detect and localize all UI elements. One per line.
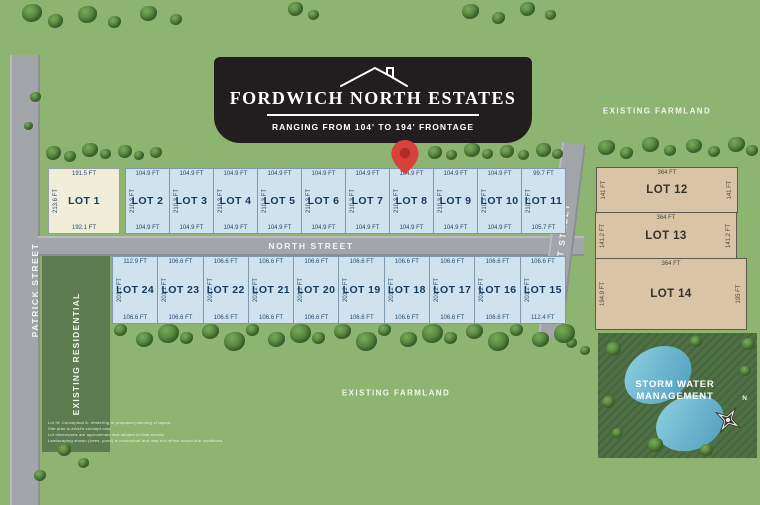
lot-cell: 104.9 FTLOT 4104.9 FT210.3 FT xyxy=(213,168,258,234)
lot-cell: 112.9 FTLOT 24106.6 FT201.1 FT xyxy=(112,256,158,324)
lot-dim-bottom: 104.9 FT xyxy=(390,225,433,231)
lot-dim-side: 201.2 FT xyxy=(525,278,531,302)
lot-dim-top: 106.6 FT xyxy=(158,259,202,265)
tree-icon xyxy=(378,324,391,336)
tree-icon xyxy=(708,146,720,157)
lot-dim-side: 201.2 FT xyxy=(434,278,440,302)
lot-dim-side: 210.3 FT xyxy=(130,189,136,213)
lot-number-label: LOT 1 xyxy=(68,195,100,207)
lot-dim-top: 106.6 FT xyxy=(339,259,383,265)
tree-icon xyxy=(290,324,311,343)
lot-dim-bottom: 104.9 FT xyxy=(302,225,345,231)
tree-icon xyxy=(288,2,303,16)
tree-icon xyxy=(114,324,127,336)
bottom-lot-row: 112.9 FTLOT 24106.6 FT201.1 FT106.6 FTLO… xyxy=(112,256,566,324)
patrick-street-road: PATRICK STREET xyxy=(10,55,40,505)
lot-number-label: LOT 8 xyxy=(396,195,428,207)
tree-icon xyxy=(134,151,144,160)
lot-dim-top: 364 FT xyxy=(596,215,736,221)
lot-dim-bottom: 106.6 FT xyxy=(204,315,248,321)
lot-cell: 104.9 FTLOT 5104.9 FT210.3 FT xyxy=(257,168,302,234)
tree-icon xyxy=(22,4,42,22)
tree-icon xyxy=(492,12,505,24)
lot-number-label: LOT 13 xyxy=(645,230,686,242)
lot-dim-left: 141 FT xyxy=(601,180,607,199)
lot-dim-bottom: 106.6 FT xyxy=(249,315,293,321)
lot-dim-top: 106.6 FT xyxy=(204,259,248,265)
lot-number-label: LOT 14 xyxy=(650,288,691,300)
tree-icon xyxy=(140,6,157,21)
lot-cell: 364 FTLOT 14194.9 FT195 FT xyxy=(595,258,747,330)
lot-dim-side: 210.3 FT xyxy=(438,189,444,213)
right-lot-column: 364 FTLOT 12141 FT141 FT364 FTLOT 13141.… xyxy=(596,168,756,330)
tree-icon xyxy=(536,143,551,157)
tree-icon xyxy=(150,147,162,158)
lot-dim-top: 106.6 FT xyxy=(430,259,474,265)
lot-dim-top: 104.9 FT xyxy=(346,171,389,177)
lot-cell: 104.9 FTLOT 10104.9 FT210.3 FT xyxy=(477,168,522,234)
lot-dim-top: 106.6 FT xyxy=(475,259,519,265)
tree-icon xyxy=(444,332,457,344)
lot-dim-top: 112.9 FT xyxy=(113,259,157,265)
lot-dim-bottom: 106.6 FT xyxy=(430,315,474,321)
existing-farmland-top-label: EXISTING FARMLAND xyxy=(603,107,711,116)
lot-dim-top: 104.9 FT xyxy=(170,171,213,177)
lot-number-label: LOT 12 xyxy=(646,184,687,196)
north-street-label: NORTH STREET xyxy=(268,241,353,251)
tree-icon xyxy=(82,143,98,157)
lot-dim-bottom: 105.7 FT xyxy=(522,225,565,231)
lot-dim-bottom: 106.6 FT xyxy=(385,315,429,321)
roof-icon xyxy=(335,65,411,87)
compass-north-label: N xyxy=(742,395,747,402)
tree-icon xyxy=(746,145,758,156)
existing-residential-label: EXISTING RESIDENTIAL xyxy=(71,293,81,416)
lot-number-label: LOT 7 xyxy=(352,195,384,207)
lot-dim-side: 210.3 FT xyxy=(174,189,180,213)
site-plan-canvas: PATRICK STREET NORTH STREET EAST STREET … xyxy=(0,0,760,505)
lot-cell: 106.6 FTLOT 22106.6 FT201.2 FT xyxy=(203,256,249,324)
lot-cell: 104.9 FTLOT 7104.9 FT210.3 FT xyxy=(345,168,390,234)
tree-icon xyxy=(202,324,219,339)
lot-dim-right: 141.2 FT xyxy=(726,223,732,247)
lot-dim-bottom: 106.6 FT xyxy=(475,315,519,321)
lot-cell: 106.6 FTLOT 21106.6 FT201.2 FT xyxy=(248,256,294,324)
lot-dim-left: 194.9 FT xyxy=(600,282,606,306)
lot-number-label: LOT 3 xyxy=(176,195,208,207)
tree-icon xyxy=(108,16,121,28)
lot-dim-right: 141 FT xyxy=(727,180,733,199)
lot-dim-side: 201.1 FT xyxy=(162,278,168,302)
tree-icon xyxy=(580,346,590,355)
lot-dim-side: 213.6 FT xyxy=(53,189,59,213)
tree-icon xyxy=(308,10,319,20)
lot-cell: 106.6 FTLOT 17106.6 FT201.2 FT xyxy=(429,256,475,324)
tree-icon xyxy=(482,149,493,159)
lot-cell: 364 FTLOT 12141 FT141 FT xyxy=(596,167,738,213)
tree-icon xyxy=(566,338,577,348)
lot-dim-side: 210.3 FT xyxy=(482,189,488,213)
tree-icon xyxy=(64,151,76,162)
lot-dim-bottom: 106.6 FT xyxy=(113,315,157,321)
lot-dim-top: 364 FT xyxy=(596,261,746,267)
lot-dim-bottom: 106.6 FT xyxy=(294,315,338,321)
lot-number-label: LOT 2 xyxy=(132,195,164,207)
lot-dim-bottom: 192.1 FT xyxy=(49,225,119,231)
tree-icon xyxy=(268,332,285,347)
storm-water-area: STORM WATER MANAGEMENT N xyxy=(598,333,757,458)
lot-dim-top: 106.6 FT xyxy=(521,259,565,265)
title-banner: FORDWICH NORTH ESTATES RANGING FROM 104'… xyxy=(214,57,532,143)
tree-icon xyxy=(78,458,89,468)
tree-icon xyxy=(422,324,443,343)
lot-number-label: LOT 9 xyxy=(440,195,472,207)
tree-icon xyxy=(642,137,659,152)
lot-dim-side: 210.3 FT xyxy=(350,189,356,213)
tree-icon xyxy=(312,332,325,344)
lot-number-label: LOT 6 xyxy=(308,195,340,207)
lot-dim-bottom: 104.9 FT xyxy=(214,225,257,231)
tree-icon xyxy=(500,145,514,158)
tree-icon xyxy=(464,143,480,157)
lot-cell: 364 FTLOT 13141.2 FT141.2 FT xyxy=(595,212,737,259)
lot-dim-right: 195 FT xyxy=(736,284,742,303)
lot-dim-side: 201.2 FT xyxy=(389,278,395,302)
tree-icon xyxy=(46,146,61,160)
lot-cell: 106.6 FTLOT 23106.6 FT201.1 FT xyxy=(157,256,203,324)
lot-cell: 104.9 FTLOT 8104.9 FT210.3 FT xyxy=(389,168,434,234)
tree-icon xyxy=(136,332,153,347)
location-pin-icon xyxy=(391,140,419,174)
lot-dim-left: 141.2 FT xyxy=(600,223,606,247)
banner-divider xyxy=(267,114,479,116)
lot-cell: 106.6 FTLOT 15112.4 FT201.2 FT xyxy=(520,256,566,324)
lot-dim-bottom: 106.6 FT xyxy=(158,315,202,321)
lot-cell: 104.9 FTLOT 3104.9 FT210.3 FT xyxy=(169,168,214,234)
lot-dim-bottom: 104.9 FT xyxy=(126,225,169,231)
tree-icon xyxy=(356,332,377,351)
disclaimer-line: Landscaping shown (trees, pond) is conce… xyxy=(48,438,223,444)
lot-dim-bottom: 106.6 FT xyxy=(339,315,383,321)
lot-dim-bottom: 104.9 FT xyxy=(346,225,389,231)
lot-dim-top: 104.9 FT xyxy=(214,171,257,177)
tree-icon xyxy=(158,324,179,343)
lot-1-container: 191.5 FTLOT 1192.1 FT213.6 FT xyxy=(48,168,120,234)
frontage-subtitle: RANGING FROM 104' TO 194' FRONTAGE xyxy=(272,122,474,132)
lot-dim-side: 210.3 FT xyxy=(306,189,312,213)
disclaimer-text: Lot fit: Conceptual A. rendering of prop… xyxy=(48,420,223,444)
lot-dim-top: 104.9 FT xyxy=(478,171,521,177)
tree-icon xyxy=(620,147,633,159)
lot-dim-side: 201.2 FT xyxy=(298,278,304,302)
lot-dim-side: 201.1 FT xyxy=(117,278,123,302)
tree-icon xyxy=(246,324,259,336)
tree-icon xyxy=(520,2,535,16)
lot-dim-side: 201.2 FT xyxy=(208,278,214,302)
lot-dim-top: 99.7 FT xyxy=(522,171,565,177)
lot-dim-side: 201.2 FT xyxy=(343,278,349,302)
lot-dim-top: 104.9 FT xyxy=(258,171,301,177)
tree-icon xyxy=(598,140,615,155)
lot-dim-side: 210.3 FT xyxy=(526,189,532,213)
lot-dim-bottom: 112.4 FT xyxy=(521,315,565,321)
tree-icon xyxy=(224,332,245,351)
tree-icon xyxy=(510,324,523,336)
lot-cell: 104.9 FTLOT 2104.9 FT210.3 FT xyxy=(125,168,170,234)
tree-icon xyxy=(78,6,97,23)
lot-dim-top: 106.6 FT xyxy=(294,259,338,265)
tree-icon xyxy=(334,324,351,339)
lot-dim-bottom: 104.9 FT xyxy=(170,225,213,231)
patrick-street-label: PATRICK STREET xyxy=(30,243,40,338)
lot-dim-bottom: 104.9 FT xyxy=(478,225,521,231)
tree-icon xyxy=(400,332,417,347)
lot-number-label: LOT 4 xyxy=(220,195,252,207)
lot-cell: 104.9 FTLOT 6104.9 FT210.3 FT xyxy=(301,168,346,234)
tree-icon xyxy=(170,14,182,25)
lot-cell: 106.6 FTLOT 18106.6 FT201.2 FT xyxy=(384,256,430,324)
tree-icon xyxy=(100,149,111,159)
lot-dim-bottom: 104.9 FT xyxy=(434,225,477,231)
lot-dim-top: 104.9 FT xyxy=(434,171,477,177)
tree-icon xyxy=(686,139,702,153)
lot-dim-top: 364 FT xyxy=(597,170,737,176)
lot-dim-top: 191.5 FT xyxy=(49,171,119,177)
tree-icon xyxy=(488,332,509,351)
tree-icon xyxy=(180,332,193,344)
tree-icon xyxy=(446,150,457,160)
lot-dim-top: 106.6 FT xyxy=(385,259,429,265)
tree-icon xyxy=(428,146,442,159)
lot-dim-side: 210.3 FT xyxy=(394,189,400,213)
tree-icon xyxy=(518,150,529,160)
lot-dim-bottom: 104.9 FT xyxy=(258,225,301,231)
lot-dim-side: 201.2 FT xyxy=(479,278,485,302)
lot-cell: 106.6 FTLOT 20106.6 FT201.2 FT xyxy=(293,256,339,324)
tree-icon xyxy=(118,145,132,158)
lot-dim-top: 106.6 FT xyxy=(249,259,293,265)
lot-dim-side: 210.3 FT xyxy=(262,189,268,213)
tree-icon xyxy=(664,145,676,156)
lot-dim-top: 104.9 FT xyxy=(126,171,169,177)
tree-icon xyxy=(462,4,479,19)
tree-icon xyxy=(466,324,483,339)
top-lot-row: 104.9 FTLOT 2104.9 FT210.3 FT104.9 FTLOT… xyxy=(125,168,566,234)
tree-icon xyxy=(728,137,745,152)
lot-cell: 106.6 FTLOT 16106.6 FT201.2 FT xyxy=(474,256,520,324)
lot-dim-side: 210.3 FT xyxy=(218,189,224,213)
lot-dim-top: 104.9 FT xyxy=(302,171,345,177)
estate-title: FORDWICH NORTH ESTATES xyxy=(230,88,517,109)
north-street-road: NORTH STREET xyxy=(38,236,584,256)
lot-cell: 191.5 FTLOT 1192.1 FT213.6 FT xyxy=(48,168,120,234)
lot-cell: 104.9 FTLOT 9104.9 FT210.3 FT xyxy=(433,168,478,234)
storm-water-label: STORM WATER MANAGEMENT xyxy=(635,379,714,403)
lot-dim-side: 201.2 FT xyxy=(253,278,259,302)
existing-farmland-bottom-label: EXISTING FARMLAND xyxy=(342,389,450,398)
lot-cell: 99.7 FTLOT 11105.7 FT210.3 FT xyxy=(521,168,566,234)
tree-icon xyxy=(48,14,63,28)
tree-icon xyxy=(545,10,556,20)
lot-cell: 106.6 FTLOT 19106.6 FT201.2 FT xyxy=(338,256,384,324)
lot-number-label: LOT 5 xyxy=(264,195,296,207)
